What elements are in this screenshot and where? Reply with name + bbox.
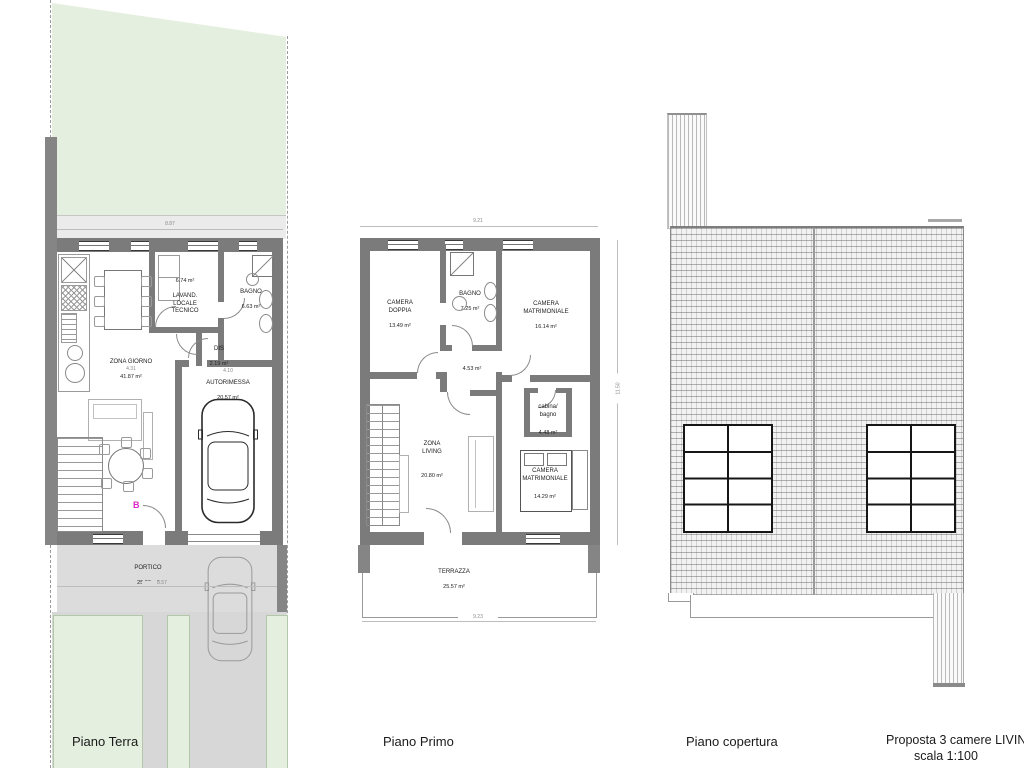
sink-bowl-icon xyxy=(65,363,85,383)
dimension-line-first-top xyxy=(360,226,598,227)
wall-doppia-bagno-upper xyxy=(440,245,446,303)
chair xyxy=(141,316,152,327)
room-name: CAMERA MATRIMONIALE xyxy=(512,468,578,484)
room-name: ZONA LIVING xyxy=(404,441,460,457)
dimension-portico-width: 8.57 xyxy=(142,581,182,586)
terrace-stub-right xyxy=(588,545,600,573)
roof-surface xyxy=(670,226,964,596)
door-arc-terrace xyxy=(426,508,451,533)
wall-first-bottom xyxy=(360,532,600,545)
terrace-stub-left xyxy=(358,545,370,573)
chair xyxy=(141,296,152,307)
terrace-door-opening xyxy=(424,532,462,545)
wall-laundry-bottom xyxy=(149,327,224,333)
room-area: 14.29 m² xyxy=(512,494,578,501)
door-arc-doppia xyxy=(417,352,438,373)
wall-first-right xyxy=(590,238,600,545)
window xyxy=(526,534,560,544)
wall-bagno-bottom-a xyxy=(440,345,452,351)
chair xyxy=(101,478,112,489)
room-area: 20.57 m² xyxy=(193,395,263,402)
room-name: LAVAND. LOCALE TECNICO xyxy=(162,293,208,316)
stairs-rail-line xyxy=(382,405,383,525)
room-area: 4.48 m² xyxy=(528,430,568,437)
window xyxy=(79,241,109,251)
roof-side-strip-end xyxy=(933,683,965,687)
room-label-cabina: cabina/ bagno 4.48 m² xyxy=(528,396,568,445)
chair xyxy=(94,296,105,307)
dining-table xyxy=(104,270,142,330)
window xyxy=(445,240,463,250)
wall-bath-left-upper xyxy=(218,252,224,302)
wall-first-top xyxy=(360,238,598,251)
portico-wall-right xyxy=(277,545,287,612)
room-area: 41.87 m² xyxy=(96,374,166,381)
sofa-seat xyxy=(93,404,137,419)
room-area: 4.53 m² xyxy=(450,366,494,373)
party-wall-left xyxy=(45,137,57,545)
wall-doppia-bottom-a xyxy=(367,372,417,379)
wall-living-matr2 xyxy=(496,392,502,532)
door-arc-entrance xyxy=(143,505,166,528)
room-area: 20.80 m² xyxy=(404,473,460,480)
radiator-icon xyxy=(61,313,77,343)
wall-living-top xyxy=(470,390,496,396)
wall-cabina-top-b xyxy=(556,388,572,393)
car-driveway xyxy=(204,556,256,662)
dimension-garage-width: 4.10 xyxy=(196,369,260,374)
drawing-scale: scala 1:100 xyxy=(886,749,1006,763)
room-name: AUTORIMESSA xyxy=(193,380,263,388)
entrance-door-opening xyxy=(143,531,165,545)
room-name: CAMERA DOPPIA xyxy=(371,300,429,316)
room-area: 13.49 m² xyxy=(371,323,429,330)
room-label-matrimoniale-1: CAMERA MATRIMONIALE 16.14 m² xyxy=(513,293,579,339)
dimension-ground-top: 8.87 xyxy=(150,222,190,227)
drawing-sheet: 8.87 xyxy=(0,0,1024,768)
pavement-strip xyxy=(52,215,286,239)
wall-ground-bottom xyxy=(57,531,283,545)
room-area: 25.57 m² xyxy=(420,584,488,591)
garden-strip-right xyxy=(266,615,288,768)
room-area: 6.74 m² xyxy=(162,278,208,285)
wall-bagno-bottom-b xyxy=(472,345,502,351)
sink-bowl-icon xyxy=(67,345,83,361)
skylight-grid-left xyxy=(683,424,773,533)
door-arc-matr1 xyxy=(510,355,531,376)
roof-step-line xyxy=(928,219,962,222)
chair xyxy=(94,276,105,287)
sofa xyxy=(88,399,142,441)
chair xyxy=(141,276,152,287)
garden-strip-middle xyxy=(167,615,190,768)
kitchen-counter xyxy=(58,254,90,392)
caption-piano-primo: Piano Primo xyxy=(383,734,454,749)
room-label-bagno-first: BAGNO 7.25 m² xyxy=(448,283,492,321)
room-name: cabina/ bagno xyxy=(528,404,568,420)
dimension-line-ground-top xyxy=(57,229,283,230)
door-arc-bagno-first xyxy=(452,325,473,346)
round-table xyxy=(108,448,144,484)
hob-icon xyxy=(61,285,87,311)
room-name: PORTICO xyxy=(112,565,184,573)
caption-piano-terra: Piano Terra xyxy=(72,734,138,749)
room-name: BAGNO xyxy=(229,289,273,297)
room-area: 7.25 m² xyxy=(448,306,492,313)
room-label-matrimoniale-2: CAMERA MATRIMONIALE 14.29 m² xyxy=(512,460,578,509)
wall-matr1-bottom-a xyxy=(502,375,512,382)
wall-ground-right xyxy=(272,238,283,545)
room-label-disimpegno: 4.53 m² xyxy=(450,358,494,381)
room-label-portico: PORTICO 25.93 m² xyxy=(112,557,184,595)
car-garage xyxy=(198,398,258,524)
window xyxy=(188,241,218,251)
room-label-bagno-ground: BAGNO 6.63 m² xyxy=(229,281,273,319)
room-label-lavanderia: 6.74 m² LAVAND. LOCALE TECNICO xyxy=(162,270,208,324)
room-name: CAMERA MATRIMONIALE xyxy=(513,301,579,317)
door-arc-living xyxy=(447,392,470,415)
dimension-first-top: 9.21 xyxy=(458,219,498,224)
wall-garage-left xyxy=(175,367,182,531)
terrace-below-outline xyxy=(690,595,935,618)
chair xyxy=(94,316,105,327)
roof-side-strip xyxy=(933,593,964,685)
staircase-first xyxy=(366,404,400,526)
garage-door-opening xyxy=(188,531,260,545)
wall-matr1-bottom-b xyxy=(530,375,598,382)
dimension-living-width: 4.31 xyxy=(101,367,161,372)
dimension-line-portico xyxy=(57,586,277,587)
skylight-grid-right xyxy=(866,424,956,533)
room-area: 16.14 m² xyxy=(513,324,579,331)
sofa-living xyxy=(468,436,494,512)
window xyxy=(388,240,418,250)
room-label-camera-doppia: CAMERA DOPPIA 13.49 m² xyxy=(371,292,429,338)
caption-piano-copertura: Piano copertura xyxy=(686,734,778,749)
window xyxy=(131,241,149,251)
chair xyxy=(99,444,110,455)
room-name: DIS xyxy=(201,346,237,354)
chair xyxy=(142,468,153,479)
sofa-seat-line xyxy=(475,440,476,508)
chair xyxy=(121,437,132,448)
window xyxy=(503,240,533,250)
room-label-zona-living: ZONA LIVING 20.80 m² xyxy=(404,433,460,488)
shower-tray-first xyxy=(450,252,474,276)
window xyxy=(93,534,123,544)
room-name: TERRAZZA xyxy=(420,569,488,577)
dimension-first-right: 11.50 xyxy=(617,374,622,404)
room-name: BAGNO xyxy=(448,291,492,299)
wall-bagno-matr1 xyxy=(496,245,502,345)
room-area: 6.63 m² xyxy=(229,304,273,311)
roof-ridge-line xyxy=(813,228,815,595)
wall-doppia-bagno-lower xyxy=(440,325,446,345)
room-label-autorimessa: AUTORIMESSA 20.57 m² xyxy=(193,372,263,410)
kitchen-unit-icon xyxy=(61,257,87,283)
wall-corridor-down xyxy=(440,372,447,392)
wall-ground-top xyxy=(57,238,283,252)
dimension-terrace-width: 9.23 xyxy=(458,615,498,620)
section-marker-b: B xyxy=(133,500,140,510)
chair xyxy=(123,481,134,492)
dimension-line-terrace xyxy=(362,621,596,622)
chair xyxy=(140,448,151,459)
drawing-title: Proposta 3 camere LIVING I xyxy=(886,733,1024,747)
wall-cabina-top-a xyxy=(524,388,538,393)
garden-area xyxy=(52,3,286,215)
chimney-strip xyxy=(667,113,707,229)
window xyxy=(239,241,257,251)
wall-garage-top-a xyxy=(175,360,189,367)
staircase-ground xyxy=(57,437,103,532)
room-label-terrazza: TERRAZZA 25.57 m² xyxy=(420,561,488,599)
